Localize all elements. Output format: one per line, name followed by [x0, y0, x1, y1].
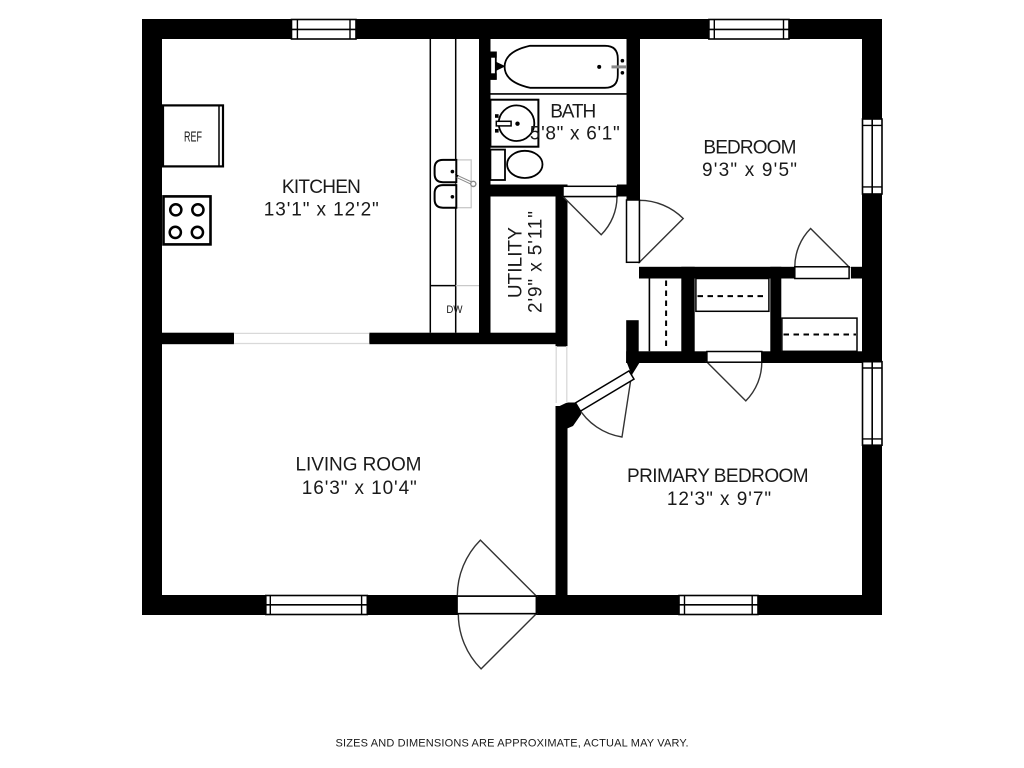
svg-text:13'1" x 12'2": 13'1" x 12'2" — [264, 200, 379, 221]
svg-text:UTILITY: UTILITY — [506, 227, 527, 298]
svg-text:16'3" x 10'4": 16'3" x 10'4" — [302, 478, 417, 499]
svg-text:KITCHEN: KITCHEN — [282, 177, 361, 198]
svg-text:DW: DW — [446, 305, 462, 317]
svg-text:9'3" x 9'5": 9'3" x 9'5" — [702, 160, 797, 181]
svg-text:BATH: BATH — [550, 102, 596, 123]
svg-text:5'8" x 6'1": 5'8" x 6'1" — [530, 124, 620, 145]
svg-text:PRIMARY BEDROOM: PRIMARY BEDROOM — [627, 466, 809, 487]
svg-text:LIVING ROOM: LIVING ROOM — [296, 455, 422, 476]
svg-text:SIZES AND DIMENSIONS ARE APPRO: SIZES AND DIMENSIONS ARE APPROXIMATE, AC… — [336, 738, 689, 750]
svg-text:REF: REF — [184, 128, 202, 145]
svg-text:12'3" x 9'7": 12'3" x 9'7" — [667, 489, 771, 510]
svg-text:2'9" x 5'11": 2'9" x 5'11" — [526, 211, 547, 313]
svg-text:BEDROOM: BEDROOM — [703, 137, 796, 158]
